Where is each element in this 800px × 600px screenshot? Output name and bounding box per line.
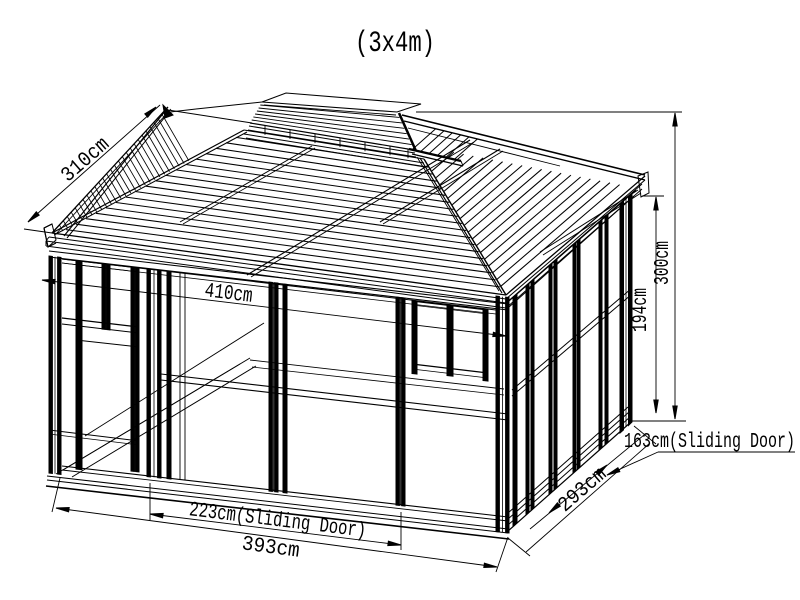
svg-text:194cm: 194cm [630,288,653,332]
svg-text:163cm(Sliding Door): 163cm(Sliding Door) [624,431,795,454]
svg-text:(3x4m): (3x4m) [355,27,435,61]
svg-text:293cm: 293cm [554,464,611,518]
svg-text:393cm: 393cm [240,533,301,563]
svg-text:410cm: 410cm [203,280,253,309]
svg-text:300cm: 300cm [652,241,675,285]
